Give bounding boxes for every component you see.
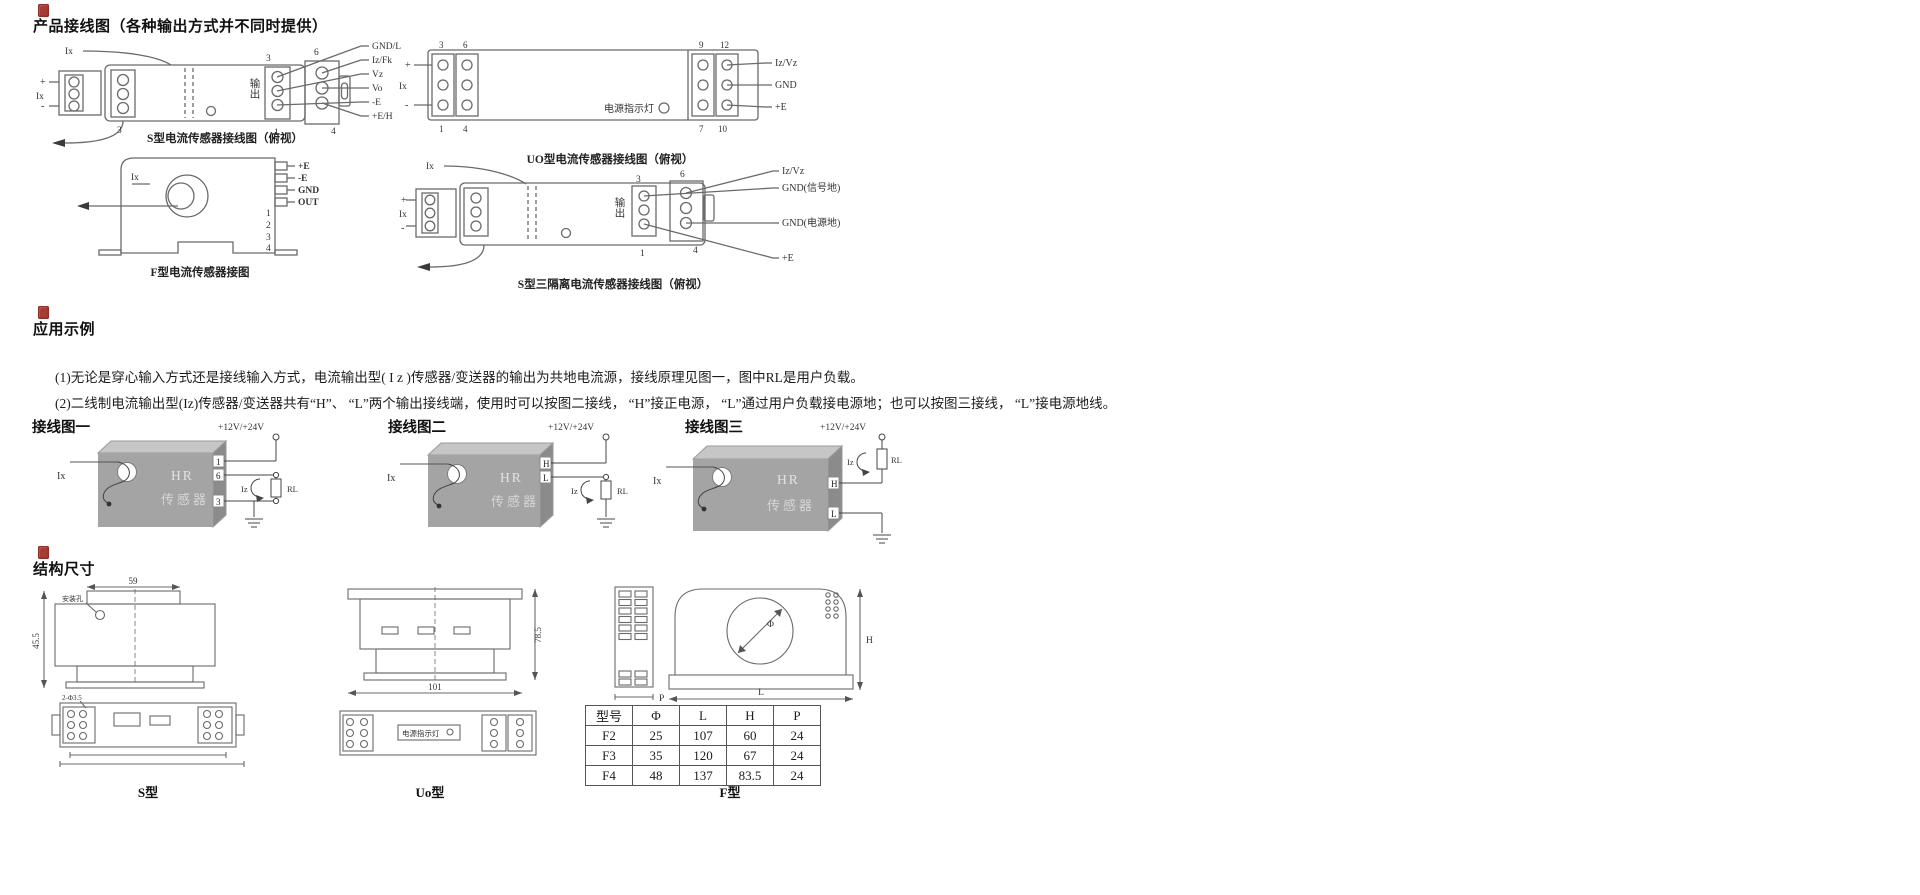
table-cell: 67 (727, 746, 774, 766)
s-terminal-6: 6 (314, 48, 319, 58)
s-type-dimension-drawing (41, 584, 244, 767)
s-mounting-hole-label: 安装孔 (62, 594, 83, 603)
application-circuit-figures: 接线图一 +12V/+24V Ix HR 传感器 1 6 (30, 415, 910, 550)
table-header-p: P (774, 706, 821, 726)
f-pin-gnd: GND (298, 186, 319, 196)
s-pin-vo: Vo (372, 84, 383, 94)
table-cell: 120 (680, 746, 727, 766)
table-cell: 60 (727, 726, 774, 746)
s3-terminal-1: 1 (640, 249, 645, 259)
s3-type-labels: Ix + Ix - 输出 3 6 1 4 Iz/Vz GND(信号地) GND(… (399, 162, 840, 291)
table-row: F3 35 120 67 24 (586, 746, 821, 766)
s-pin-vz: Vz (372, 70, 383, 80)
s3-pin-iz-vz: Iz/Vz (782, 166, 805, 177)
uo-type-dimension-labels: 78.5 101 电源指示灯 Uo型 (402, 627, 543, 800)
uo-terminal-3: 3 (439, 40, 444, 50)
uo-type-caption: UO型电流传感器接线图（俯视） (527, 152, 694, 166)
s3-terminal-3: 3 (636, 175, 641, 185)
s-type-labels: Ix + Ix - 3 3 6 1 4 输出 GND/L Iz/Fk Vz Vo… (36, 42, 401, 145)
fig1-rl-label: RL (287, 484, 298, 494)
uo-and-s3-wiring-diagrams: + Ix - 3 6 1 4 9 12 7 10 电源指示灯 Iz/Vz GND… (398, 35, 878, 297)
fig1-box-title: HR (171, 468, 194, 483)
uo-plus-label: + (405, 60, 411, 71)
fig1-supply-label: +12V/+24V (218, 423, 264, 433)
f-type-labels: Ix +E -E GND OUT 1 2 3 4 F型电流传感器接图 (131, 162, 319, 279)
s-type-caption: S型电流传感器接线图（俯视） (147, 131, 303, 145)
fig3-label: 接线图三 (685, 418, 743, 436)
table-cell: 137 (680, 766, 727, 786)
uo-terminal-9: 9 (699, 40, 704, 50)
sensor-box-side (213, 441, 226, 527)
uo-dim-bottom: 101 (428, 682, 442, 692)
fig2-iz-label: Iz (571, 486, 578, 496)
fig3-iz-label: Iz (847, 457, 854, 467)
s-type-module-drawing (49, 46, 369, 147)
fig2-terminal-h: H (543, 459, 550, 469)
f-input-label: Ix (131, 173, 139, 183)
uo-terminal-6: 6 (463, 40, 468, 50)
s-type-dim-caption: S型 (138, 785, 158, 800)
load-resistor (877, 449, 887, 469)
fig3-rl-label: RL (891, 455, 902, 465)
fig1-terminal-1: 1 (216, 457, 221, 467)
fig3-input-label: Ix (653, 476, 661, 487)
s-pin-minus-e: -E (372, 98, 381, 108)
uo-type-dim-caption: Uo型 (416, 785, 445, 800)
f-terminal-1: 1 (266, 209, 271, 219)
sensor-box-top (428, 443, 553, 455)
table-cell: 24 (774, 766, 821, 786)
fig3-box-title: HR (777, 472, 800, 487)
fig3-terminal-h: H (831, 479, 838, 489)
f-dimension-table: 型号 Φ L H P F2 25 107 60 24 F3 35 120 67 … (585, 705, 821, 786)
f-pin-out: OUT (298, 198, 319, 208)
f-type-dimension-drawing (615, 587, 863, 702)
s3-input-side-label: Ix (399, 210, 407, 220)
current-arrow (586, 497, 594, 504)
f-dim-p: P (659, 694, 664, 704)
s-pin-iz-fk: Iz/Fk (372, 56, 392, 66)
s-output-label: 输出 (249, 77, 260, 99)
s-and-f-wiring-diagrams: Ix + Ix - 3 3 6 1 4 输出 GND/L Iz/Fk Vz Vo… (35, 38, 415, 283)
table-cell: 35 (633, 746, 680, 766)
f-arrow-head (77, 202, 89, 210)
f-type-caption: F型电流传感器接图 (150, 265, 249, 279)
fig2-label: 接线图二 (388, 418, 446, 436)
fig1-iz-label: Iz (241, 484, 248, 494)
s3-terminal-6: 6 (680, 170, 685, 180)
fig3-terminal-l: L (831, 509, 837, 519)
sensor-box-front (98, 453, 213, 527)
s3-arrow-head (417, 263, 430, 271)
s3-pin-gnd-signal: GND(信号地) (782, 181, 840, 194)
app-fig1: 接线图一 +12V/+24V Ix HR 传感器 1 6 (32, 418, 298, 527)
s-terminal-4: 4 (331, 127, 336, 137)
table-cell: 24 (774, 746, 821, 766)
s-pin-gnd-l: GND/L (372, 42, 401, 52)
s3-minus-label: - (401, 223, 404, 234)
sensor-box-side (540, 443, 553, 527)
table-cell: 48 (633, 766, 680, 786)
fig1-label: 接线图一 (32, 418, 90, 436)
table-header-phi: Φ (633, 706, 680, 726)
s3-output-label: 输出 (614, 196, 625, 218)
uo-pin-iz-vz: Iz/Vz (775, 58, 798, 69)
uo-indicator-label: 电源指示灯 (604, 102, 654, 115)
s-terminal-3: 3 (266, 54, 271, 64)
uo-terminal-1: 1 (439, 124, 444, 134)
fig3-supply-label: +12V/+24V (820, 423, 866, 433)
uo-type-module-drawing (414, 50, 772, 120)
fig2-terminal-l: L (543, 473, 549, 483)
fig1-terminal-6: 6 (216, 471, 221, 481)
f-pin-plus-e: +E (298, 162, 310, 172)
s3-type-caption: S型三隔离电流传感器接线图（俯视） (518, 277, 708, 291)
section-title-application: 应用示例 (33, 318, 95, 339)
table-cell: F2 (586, 726, 633, 746)
left-arrow-head (52, 139, 65, 147)
f-type-drawing (77, 158, 297, 255)
sensor-box-front (693, 459, 828, 531)
uo-minus-label: - (405, 100, 408, 111)
f-dim-l: L (758, 688, 764, 698)
uo-terminal-10: 10 (718, 124, 728, 134)
s3-terminal-4: 4 (693, 246, 698, 256)
uo-input-label: Ix (399, 82, 407, 92)
load-resistor (601, 481, 611, 499)
fig2-box-title: HR (500, 470, 523, 485)
table-row: F4 48 137 83.5 24 (586, 766, 821, 786)
f-type-dim-caption: F型 (720, 785, 741, 800)
app-fig3: 接线图三 +12V/+24V Ix HR 传感器 H L RL Iz (653, 418, 902, 543)
table-header-l: L (680, 706, 727, 726)
s3-plus-label: + (401, 195, 407, 206)
uo-indicator-label: 电源指示灯 (402, 728, 440, 738)
load-resistor (271, 479, 281, 497)
f-terminal-2: 2 (266, 221, 271, 231)
f-terminal-3: 3 (266, 233, 271, 243)
uo-pin-plus-e: +E (775, 102, 787, 113)
f-terminal-4: 4 (266, 244, 271, 254)
s-dim-width: 59 (129, 576, 139, 586)
fig1-terminal-3: 3 (216, 497, 221, 507)
s3-type-module-drawing (406, 166, 779, 271)
fig3-box-subtitle: 传感器 (767, 498, 815, 513)
datasheet-page: { "colors": {"accent_red": "#a63c36", "d… (0, 0, 1920, 895)
s-left-terminal-number: 3 (117, 126, 122, 136)
sensor-box-top (98, 441, 226, 453)
s3-pin-plus-e: +E (782, 253, 794, 264)
uo-pin-gnd: GND (775, 80, 797, 91)
uo-terminal-12: 12 (720, 40, 729, 50)
sensor-box-front (428, 455, 540, 527)
table-cell: F3 (586, 746, 633, 766)
power-indicator-led (659, 103, 669, 113)
fig2-box-subtitle: 传感器 (491, 494, 539, 509)
table-row: F2 25 107 60 24 (586, 726, 821, 746)
s3-input-top-label: Ix (426, 162, 434, 172)
table-cell: 107 (680, 726, 727, 746)
application-paragraph-1: (1)无论是穿心输入方式还是接线输入方式，电流输出型( I z )传感器/变送器… (55, 366, 864, 386)
s-dim-height: 45.5 (31, 633, 41, 649)
s-pin-plus-e-h: +E/H (372, 112, 393, 122)
s-holes-callout: 2-Φ3.5 (62, 694, 82, 702)
s3-pin-gnd-power: GND(电源地) (782, 216, 840, 229)
table-cell: 25 (633, 726, 680, 746)
table-cell: 83.5 (727, 766, 774, 786)
s-minus-label: - (41, 101, 44, 112)
fig2-rl-label: RL (617, 486, 628, 496)
sensor-box-top (693, 446, 842, 459)
table-cell: 24 (774, 726, 821, 746)
app-fig2: 接线图二 +12V/+24V Ix HR 传感器 H L RL Iz (387, 418, 628, 527)
uo-terminal-7: 7 (699, 124, 704, 134)
table-header-row: 型号 Φ L H P (586, 706, 821, 726)
fig2-supply-label: +12V/+24V (548, 423, 594, 433)
table-header-h: H (727, 706, 774, 726)
s-input-top-label: Ix (65, 47, 73, 57)
uo-dim-height: 78.5 (533, 627, 543, 643)
fig1-input-label: Ix (57, 471, 65, 482)
table-header-model: 型号 (586, 706, 633, 726)
current-arrow (862, 469, 870, 476)
f-pin-minus-e: -E (298, 174, 308, 184)
s-plus-label: + (40, 77, 46, 88)
uo-terminal-4: 4 (463, 124, 468, 134)
section-title-wiring: 产品接线图（各种输出方式并不同时提供） (33, 15, 328, 36)
fig2-input-label: Ix (387, 473, 395, 484)
f-dim-h: H (866, 636, 873, 646)
application-paragraph-2: (2)二线制电流输出型(Iz)传感器/变送器共有“H”、 “L”两个输出接线端，… (55, 392, 1116, 412)
table-cell: F4 (586, 766, 633, 786)
mounting-hole (96, 611, 105, 620)
fig1-box-subtitle: 传感器 (161, 492, 209, 507)
f-dim-phi: Φ (767, 620, 774, 630)
power-indicator-led (447, 729, 453, 735)
